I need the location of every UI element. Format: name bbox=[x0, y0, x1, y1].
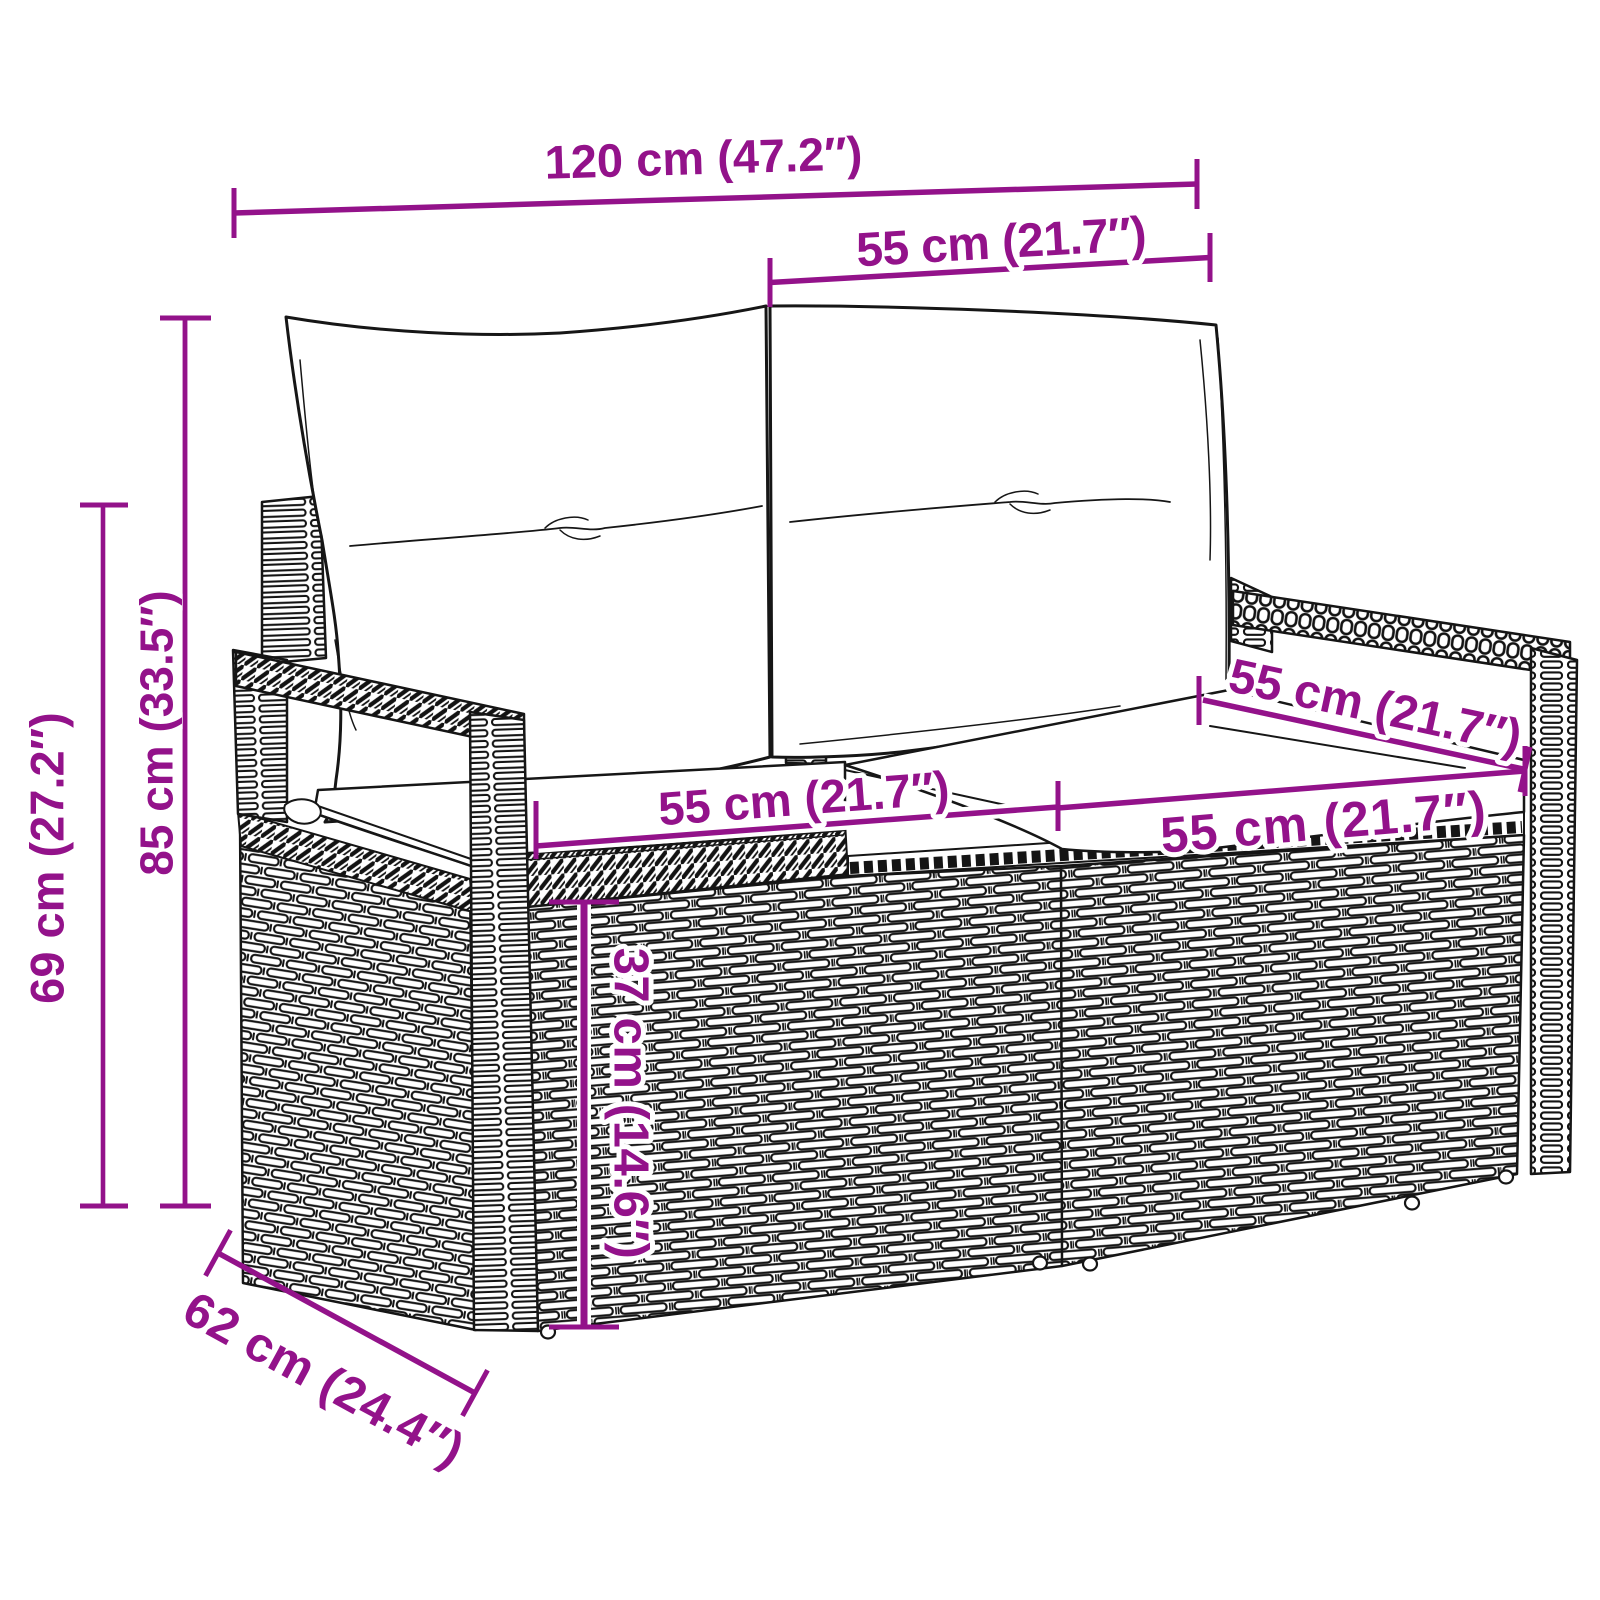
svg-text:120 cm (47.2″): 120 cm (47.2″) bbox=[544, 126, 863, 188]
svg-text:37 cm (14.6″): 37 cm (14.6″) bbox=[603, 948, 657, 1260]
svg-text:69 cm (27.2″): 69 cm (27.2″) bbox=[21, 712, 74, 1004]
svg-text:85 cm (33.5″): 85 cm (33.5″) bbox=[131, 590, 183, 875]
